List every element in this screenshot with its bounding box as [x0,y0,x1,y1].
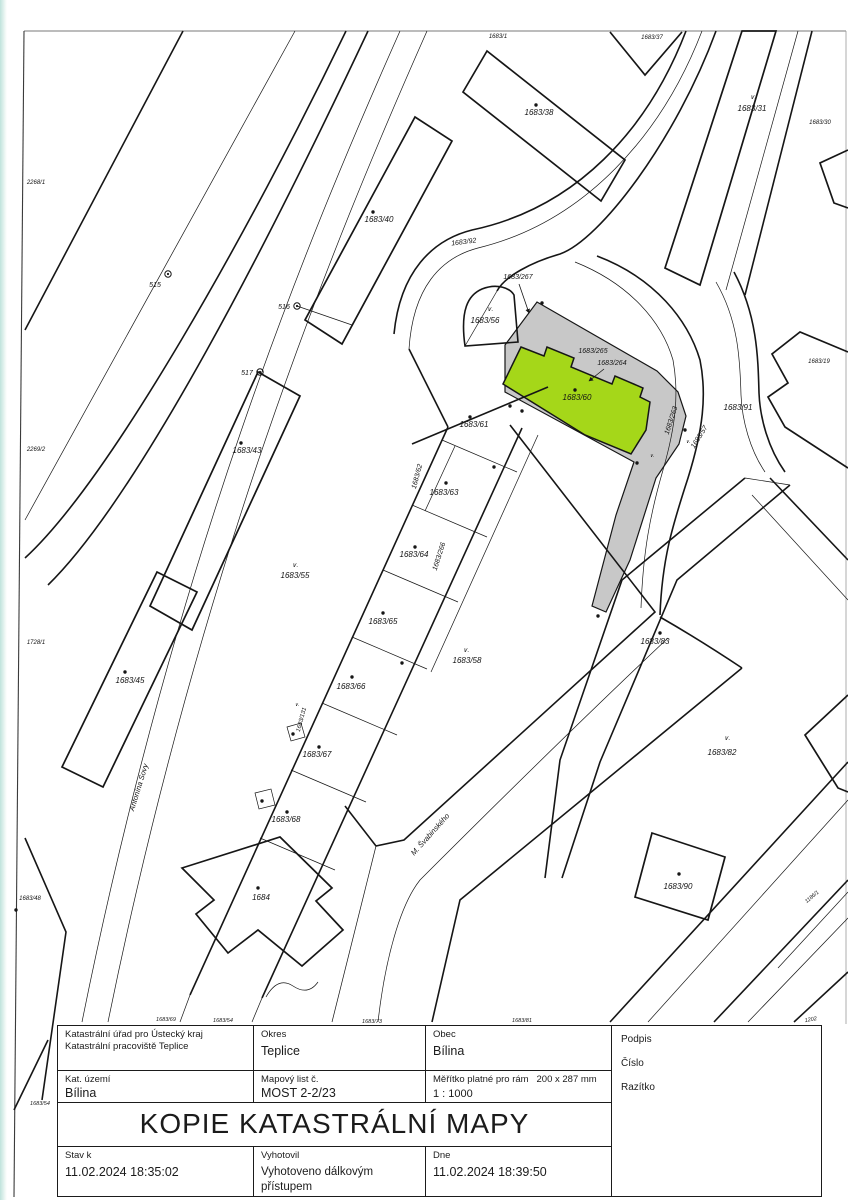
boundary-point-dot [677,872,680,875]
building-outlines [62,31,848,966]
label-leader-arrow [519,284,529,313]
control-point-center [296,305,298,307]
landuse-v-symbol: ∨. [463,647,470,654]
parcel-label: 1683/82 [708,748,737,757]
dne-value: 11.02.2024 18:39:50 [433,1165,605,1180]
parcel-label: 516 [278,304,290,311]
boundary-point-dot [573,388,576,391]
landuse-v-symbol: ∨. [487,306,494,313]
parcel-label: 1683/37 [641,35,663,41]
boundary-point-dot [492,465,495,468]
table-row-2: Kat. území Bílina Mapový list č. MOST 2-… [58,1071,611,1103]
mapovy-list-label: Mapový list č. [261,1074,419,1086]
stav-value: 11.02.2024 18:35:02 [65,1165,247,1180]
parcel-label: 1683/30 [809,120,831,126]
landuse-v-symbol: ∨. [294,702,299,708]
boundary-point-dot [381,611,384,614]
document-info-table: Katastrální úřad pro Ústecký kraj Katast… [57,1025,822,1197]
meritko-frame: 200 x 287 mm [537,1074,597,1085]
parcel-label: 1202 [804,1016,817,1024]
parcel-label: 1683/81 [512,1018,532,1024]
landuse-v-symbol: ∨. [292,562,299,569]
boundary-point-dot [291,732,294,735]
parcel-lines-thick [14,31,848,1110]
parcel-label: 1683/266 [432,541,448,571]
boundary-point-dot [260,799,263,802]
parcel-label: 1683/131 [296,707,308,733]
survey-points-layer [14,103,686,911]
boundary-point-dot [123,670,126,673]
boundary-point-dot [468,415,471,418]
meritko-label: Měřítko platné pro rám 200 x 287 mm [433,1074,605,1086]
building-1683-19 [768,332,848,468]
parcel-label: 1683/68 [272,815,301,824]
boundary-point-dot [350,675,353,678]
parcel-label: 1728/1 [27,640,45,646]
stav-label: Stav k [65,1150,247,1162]
obec-value: Bílina [433,1044,605,1059]
table-row-1: Katastrální úřad pro Ústecký kraj Katast… [58,1026,611,1071]
parcel-label: 1683/43 [233,446,262,455]
parcel-label: 1683/45 [116,676,145,685]
parcel-label: 1683/69 [156,1017,176,1023]
control-point-center [259,371,261,373]
parcel-label: 1683/54 [30,1101,50,1107]
parcel-label: 1683/48 [19,896,41,902]
parcel-label: 1684 [252,893,270,902]
street-label: M. Švabinského [409,811,451,857]
parcel-label: 1683/31 [738,104,767,113]
parcel-label: 1683/265 [578,348,607,355]
boundary-point-dot [239,441,242,444]
parcel-label: 1683/91 [724,403,753,412]
meritko-value: 1 : 1000 [433,1087,605,1102]
building-1683-30 [665,31,776,285]
landuse-v-symbol: ∨. [685,439,690,445]
building-1683-40 [305,117,452,344]
parcel-label: 1683/62 [411,463,424,489]
cell-kat-uzemi: Kat. území Bílina [58,1071,254,1102]
cell-dne: Dne 11.02.2024 18:39:50 [426,1147,611,1196]
building-top-right [820,150,848,208]
cell-vyhotovil: Vyhotovil Vyhotoveno dálkovým přístupem [254,1147,426,1196]
boundary-point-dot [285,810,288,813]
parcel-label: 1683/38 [525,108,554,117]
kat-uzemi-value: Bílina [65,1086,247,1101]
cell-mapovy-list: Mapový list č. MOST 2-2/23 [254,1071,426,1102]
parcel-label: 1683/54 [213,1018,233,1024]
parcel-labels-layer: 2268/12269/21728/11683/481683/5451551651… [19,34,831,1107]
okres-value: Teplice [261,1044,419,1059]
parcel-label: 1683/19 [808,359,830,365]
building-1683-38 [463,51,625,201]
parcel-label: 1683/40 [365,215,394,224]
boundary-point-dot [534,103,537,106]
boundary-point-dot [400,661,403,664]
cell-stav: Stav k 11.02.2024 18:35:02 [58,1147,254,1196]
parcel-label: 1683/64 [400,550,429,559]
street-label: Antonína Sovy [127,761,151,812]
parcel-label: 1683/61 [460,420,489,429]
parcel-label: 1683/1 [489,34,507,40]
parcel-label: 1683/83 [641,637,670,646]
building-right-edge [805,695,848,792]
cadastral-map-canvas: 2268/12269/21728/11683/481683/5451551651… [0,0,848,1200]
table-row-footer: Stav k 11.02.2024 18:35:02 Vyhotovil Vyh… [58,1147,611,1196]
cell-office: Katastrální úřad pro Ústecký kraj Katast… [58,1026,254,1070]
boundary-point-dot [371,210,374,213]
boundary-point-dot [14,908,17,911]
dne-label: Dne [433,1150,605,1162]
parcel-label: 1683/63 [430,488,459,497]
document-title: KOPIE KATASTRÁLNÍ MAPY [140,1108,530,1140]
razitko-label: Razítko [621,1082,821,1093]
map-frame [14,31,846,1197]
vyhotovil-value: Vyhotoveno dálkovým přístupem [261,1165,419,1195]
cadastral-map-page: 2268/12269/21728/11683/481683/5451551651… [0,0,848,1200]
parcel-label: 515 [149,282,161,289]
parcel-label: 1683/58 [453,656,482,665]
podpis-label: Podpis [621,1034,821,1045]
parcel-label: 1683/267 [503,274,533,281]
parcel-label: 517 [241,370,254,377]
kat-uzemi-label: Kat. území [65,1074,247,1086]
boundary-point-dot [413,545,416,548]
building-1683-90 [635,833,725,920]
table-left-section: Katastrální úřad pro Ústecký kraj Katast… [58,1026,611,1196]
office-line2: Katastrální pracoviště Teplice [65,1041,247,1053]
landuse-v-symbol: ∨. [750,94,757,101]
boundary-point-dot [317,745,320,748]
title-row: KOPIE KATASTRÁLNÍ MAPY [58,1103,611,1147]
parcel-label: 1683/90 [664,882,693,891]
mapovy-list-value: MOST 2-2/23 [261,1086,419,1101]
office-line1: Katastrální úřad pro Ústecký kraj [65,1029,247,1041]
landuse-v-symbol: ∨. [649,453,654,459]
cell-obec: Obec Bílina [426,1026,611,1070]
parcel-label: 1186/1 [804,890,820,905]
boundary-point-dot [635,461,638,464]
boundary-point-dot [658,631,661,634]
parcel-label: 1683/66 [337,682,366,691]
parcel-label: 1683/60 [563,393,592,402]
parcel-label: 1683/92 [451,237,477,247]
boundary-point-dot [596,614,599,617]
boundary-point-dot [508,404,511,407]
boundary-point-dot [520,409,523,412]
boundary-point-dot [444,481,447,484]
okres-label: Okres [261,1029,419,1041]
table-right-section: Podpis Číslo Razítko [611,1026,821,1196]
cell-okres: Okres Teplice [254,1026,426,1070]
obec-label: Obec [433,1029,605,1041]
boundary-point-dot [256,886,259,889]
parcel-label: 2268/1 [26,180,45,186]
control-point-center [167,273,169,275]
parcel-label: 2269/2 [26,447,46,453]
parcel-label: 1683/264 [597,360,626,367]
vyhotovil-label: Vyhotovil [261,1150,419,1162]
parcel-label: 1683/55 [281,571,310,580]
cislo-label: Číslo [621,1058,821,1069]
parcel-label: 1683/56 [471,316,500,325]
landuse-v-symbol: ∨. [724,735,731,742]
parcel-label: 1683/65 [369,617,398,626]
boundary-point-dot [540,301,543,304]
boundary-point-dot [683,428,686,431]
parcel-label: 1683/67 [303,750,332,759]
cell-meritko: Měřítko platné pro rám 200 x 287 mm 1 : … [426,1071,611,1102]
